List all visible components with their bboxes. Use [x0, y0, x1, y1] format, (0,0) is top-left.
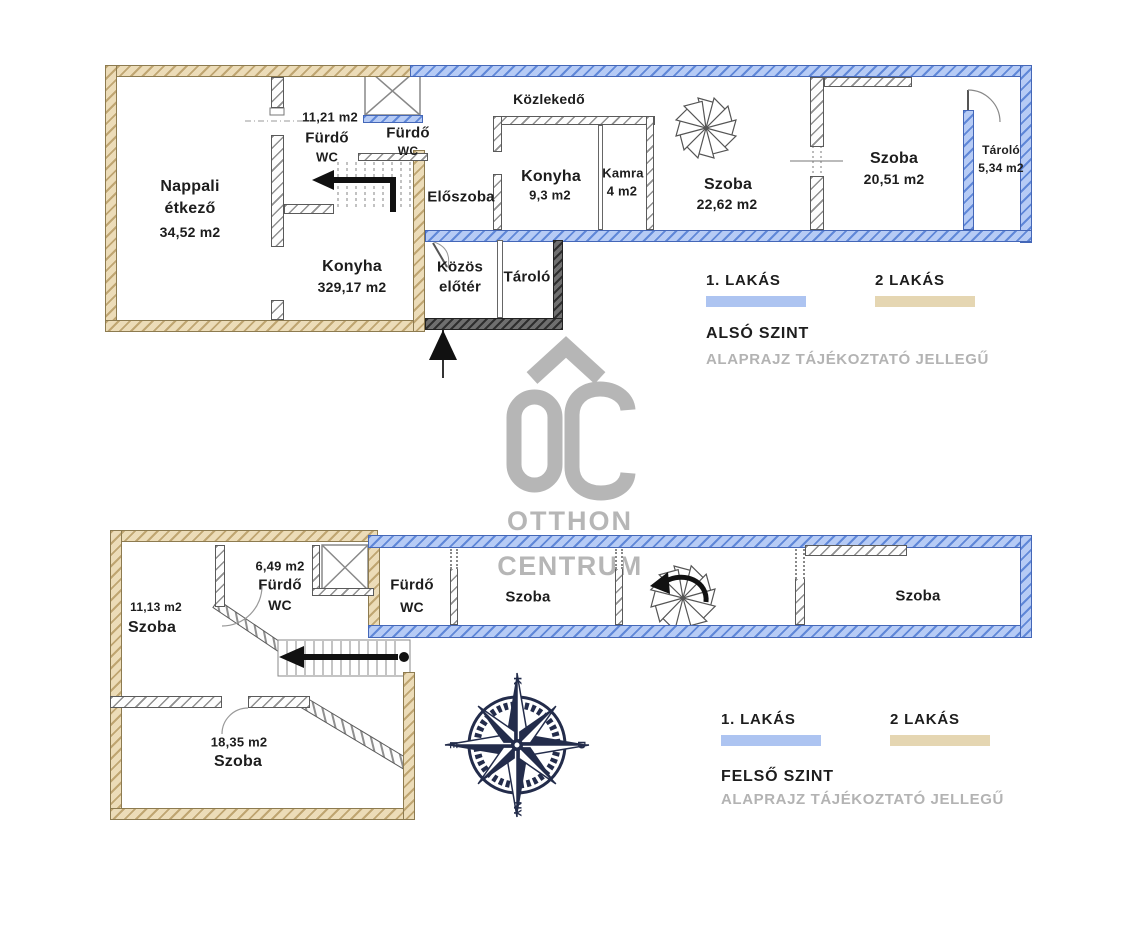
compass-label-right: D	[575, 741, 587, 749]
room-label-kozos-eloter-line2: előtér	[439, 279, 481, 296]
floorplan-disclaimer: ALAPRAJZ TÁJÉKOZTATÓ JELLEGŰ	[721, 791, 1004, 808]
room-label-szoba-jobb-lower: Szoba	[895, 588, 940, 605]
door-arc	[222, 708, 248, 734]
room-area-szoba-jobb: 20,51 m2	[864, 171, 925, 187]
wall-segment	[105, 320, 425, 332]
room-area-nappali: 34,52 m2	[160, 224, 221, 240]
room-area-szoba-also: 18,35 m2	[211, 735, 268, 750]
staircase-lower-plan	[278, 640, 410, 676]
wall-segment	[493, 116, 502, 152]
room-label-furdo-tan-line2: WC	[316, 150, 338, 165]
legend-swatch-apartment2	[890, 735, 990, 746]
legend-swatch-apartment1	[721, 735, 821, 746]
wall-segment	[363, 115, 423, 123]
window-gap	[795, 549, 805, 579]
room-label-kozos-eloter-line1: Közös	[437, 259, 483, 276]
room-label-kamra: Kamra	[602, 166, 643, 181]
wall-segment	[963, 110, 974, 230]
door-leaf	[270, 108, 284, 115]
room-label-furdo-tan-lower-line1: Fürdő	[258, 577, 302, 594]
wall-segment	[271, 300, 284, 320]
floor-title-lower-level: ALSÓ SZINT	[706, 325, 809, 343]
wall-segment	[553, 240, 563, 328]
room-area-konyha-tan: 329,17 m2	[318, 279, 387, 295]
room-label-furdo-tan-line1: Fürdő	[305, 130, 349, 147]
compass-label-bottom: NY	[511, 801, 523, 817]
wall-segment	[271, 77, 284, 108]
wall-segment	[403, 672, 415, 820]
room-label-nappali-line1: Nappali	[160, 178, 219, 196]
legend-apartment2-label: 2 LAKÁS	[875, 272, 945, 289]
window-between-rooms	[790, 146, 843, 176]
room-area-kamra: 4 m2	[607, 184, 637, 199]
room-label-furdo-blue-lower-line2: WC	[400, 599, 424, 615]
compass-label-top: K	[511, 677, 523, 685]
room-label-furdo-tan-lower-line2: WC	[268, 597, 292, 613]
wall-segment	[810, 176, 824, 230]
room-label-konyha-tan: Konyha	[322, 258, 382, 276]
wall-segment	[493, 116, 655, 125]
wall-segment	[215, 545, 225, 607]
room-label-furdo-blue-lower-line1: Fürdő	[390, 577, 434, 594]
wall-segment	[410, 65, 1032, 77]
room-label-konyha-blue: Konyha	[521, 168, 581, 186]
room-label-szoba-kozep-lower: Szoba	[505, 589, 550, 606]
wall-segment	[110, 696, 222, 708]
wall-segment	[110, 808, 415, 820]
wall-segment	[368, 535, 1032, 548]
legend-swatch-apartment1	[706, 296, 806, 307]
room-area-szoba-kozep: 22,62 m2	[697, 196, 758, 212]
wall-segment	[299, 697, 411, 770]
spiral-staircase-icon	[675, 97, 737, 159]
wall-segment	[271, 135, 284, 247]
room-label-nappali-line2: étkező	[165, 200, 216, 218]
wall-segment	[368, 535, 380, 638]
wall-segment	[425, 230, 1032, 242]
room-label-szoba-jobb: Szoba	[870, 150, 918, 168]
window-gap	[450, 549, 458, 569]
room-label-tarolo-kozep: Tároló	[503, 269, 550, 286]
room-label-tarolo-jobb: Tároló	[982, 143, 1020, 157]
room-label-szoba-bal: Szoba	[128, 619, 176, 637]
wall-segment	[110, 530, 122, 820]
room-label-szoba-also: Szoba	[214, 753, 262, 771]
room-label-kozlekedo: Közlekedő	[513, 91, 585, 107]
wall-segment	[615, 568, 623, 625]
legend-apartment1-label: 1. LAKÁS	[706, 272, 781, 289]
floorplan-disclaimer: ALAPRAJZ TÁJÉKOZTATÓ JELLEGŰ	[706, 351, 989, 368]
room-area-szoba-bal: 11,13 m2	[130, 600, 182, 614]
wall-segment	[824, 77, 912, 87]
compass-label-left: É	[447, 741, 460, 748]
room-area-konyha-blue: 9,3 m2	[529, 188, 571, 203]
floor-title-upper-level: FELSŐ SZINT	[721, 768, 834, 786]
wall-segment	[105, 65, 425, 77]
wall-segment	[805, 545, 907, 556]
wall-segment	[105, 65, 117, 332]
wall-segment	[413, 150, 425, 332]
room-label-furdo-blue-line2: WC	[398, 144, 418, 158]
room-area-furdo-tan: 11,21 m2	[302, 110, 358, 125]
room-label-furdo-blue-line1: Fürdő	[386, 125, 430, 142]
wall-segment	[368, 625, 1032, 638]
room-area-tarolo-jobb: 5,34 m2	[978, 161, 1023, 175]
room-label-szoba-kozep: Szoba	[704, 176, 752, 194]
wall-segment	[425, 318, 563, 330]
room-label-eloszoba: Előszoba	[427, 189, 494, 206]
wall-segment	[248, 696, 310, 708]
wall-segment	[1020, 65, 1032, 243]
compass-rose-icon: K D NY É	[445, 673, 589, 817]
wall-segment	[284, 204, 334, 214]
wall-segment	[450, 568, 458, 625]
wall-segment	[110, 530, 378, 542]
spiral-staircase-icon	[650, 565, 716, 630]
shaft-icon-lower	[322, 545, 368, 590]
legend-swatch-apartment2	[875, 296, 975, 307]
wall-segment	[646, 116, 654, 230]
wall-segment	[312, 588, 374, 596]
wall-segment	[497, 240, 503, 318]
floorplan-canvas: OTTHON CENTRUM	[0, 0, 1136, 926]
legend-apartment1-label: 1. LAKÁS	[721, 711, 796, 728]
room-area-furdo-tan-lower: 6,49 m2	[255, 559, 304, 574]
wall-segment	[810, 77, 824, 147]
legend-apartment2-label: 2 LAKÁS	[890, 711, 960, 728]
window-gap	[615, 549, 623, 569]
wall-segment	[795, 578, 805, 625]
wall-segment	[1020, 535, 1032, 638]
entrance-arrow-icon	[429, 326, 457, 378]
